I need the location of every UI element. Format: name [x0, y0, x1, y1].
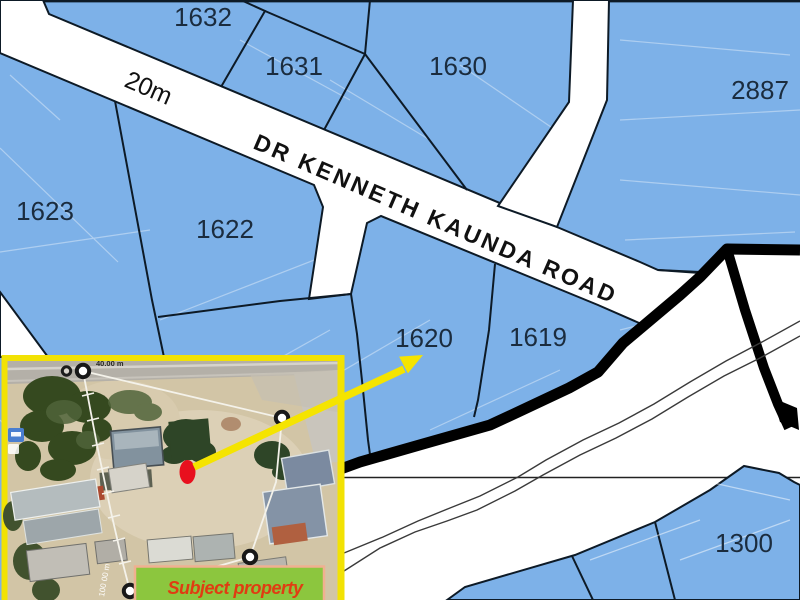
- svg-text:1630: 1630: [429, 51, 487, 81]
- svg-text:40.00 m: 40.00 m: [96, 359, 124, 368]
- svg-text:1300: 1300: [715, 528, 773, 558]
- svg-text:1631: 1631: [265, 51, 323, 81]
- svg-text:1632: 1632: [174, 2, 232, 32]
- svg-text:1619: 1619: [509, 322, 567, 352]
- svg-text:1620: 1620: [395, 323, 453, 353]
- svg-text:2887: 2887: [731, 75, 789, 105]
- svg-text:1622: 1622: [196, 214, 254, 244]
- svg-text:Subject property: Subject property: [167, 578, 304, 598]
- svg-text:1623: 1623: [16, 196, 74, 226]
